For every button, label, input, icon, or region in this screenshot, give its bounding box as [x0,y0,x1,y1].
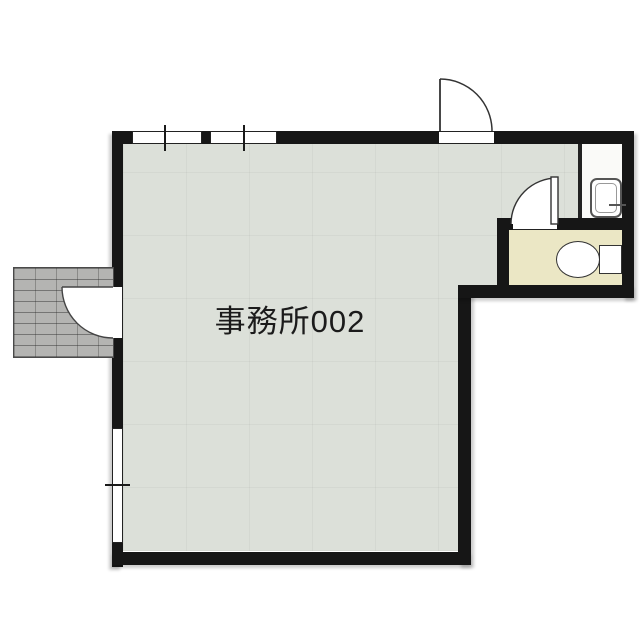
window-top-left-icon [132,131,202,144]
right-wall [622,131,634,298]
hand-wash-sink-icon [590,178,622,218]
left-doorway [112,287,123,338]
step-wall [458,285,471,565]
entrance-porch-tiles [13,267,114,358]
wc-doorway [513,218,557,230]
room-label: 事務所002 [188,296,392,341]
floor-plan: 事務所002 [0,0,640,640]
window-mullion-tick [164,125,166,151]
wc-left-wall [497,218,509,298]
toilet-icon [556,241,600,278]
main-room-floor [123,144,578,551]
window-mullion-tick [243,125,245,151]
faucet-icon [609,204,626,206]
bottom-wall [112,552,471,565]
wc-bottom-wall [458,285,634,298]
toilet-tank [599,245,622,274]
top-doorway [439,131,494,144]
window-mullion-tick [105,484,130,486]
top-entrance-door-swing-icon [440,79,492,131]
sink-basin [595,183,617,213]
